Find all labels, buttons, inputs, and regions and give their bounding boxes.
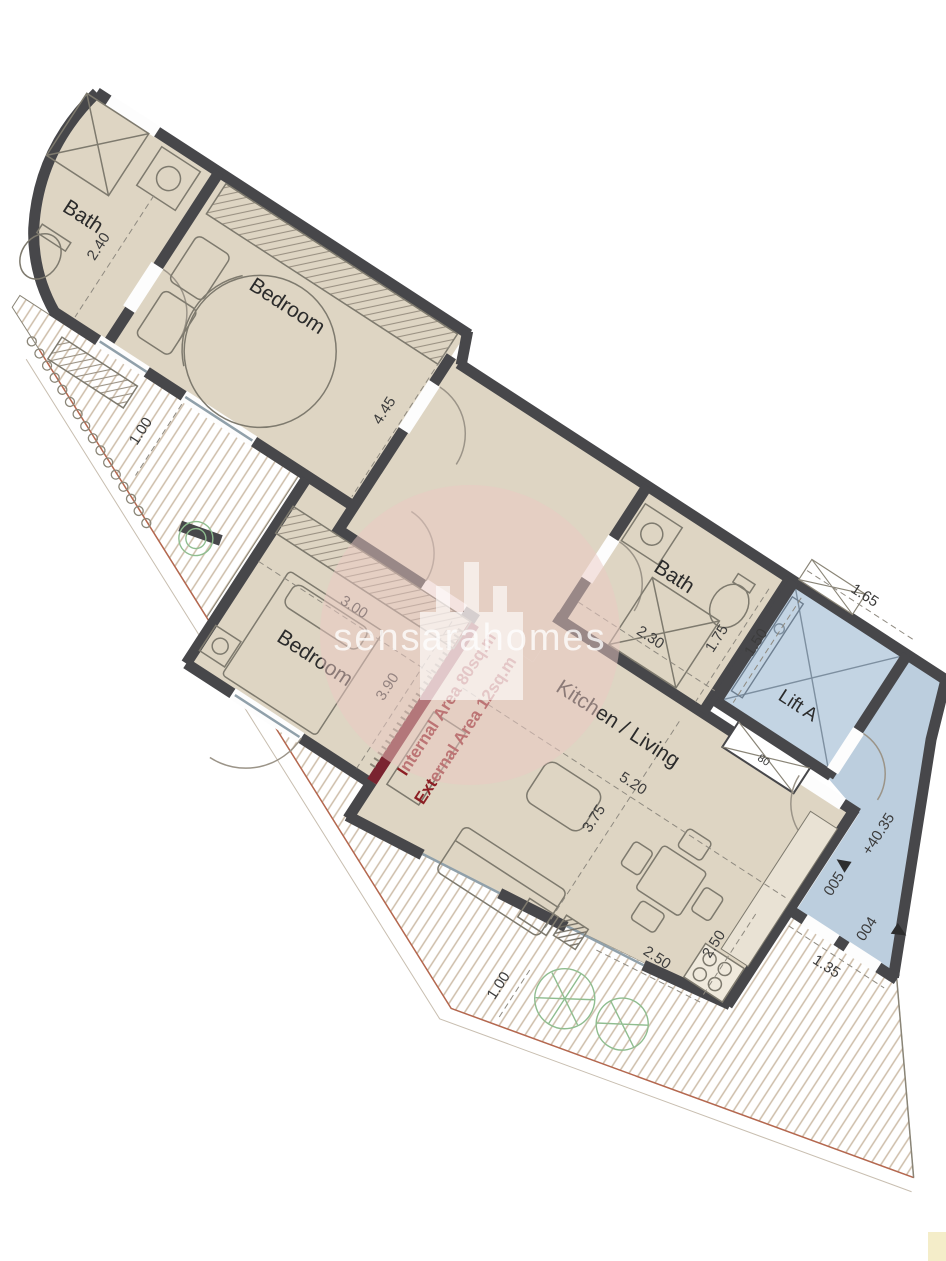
watermark: sensarahomes (320, 485, 620, 785)
watermark-text: sensarahomes (333, 617, 606, 659)
corner-artifact (928, 1232, 946, 1261)
floor-plan-page: Bath Bedroom Bedroom Bath Kitchen / Livi… (0, 0, 946, 1261)
floor-plan-canvas: Bath Bedroom Bedroom Bath Kitchen / Livi… (0, 0, 946, 1261)
